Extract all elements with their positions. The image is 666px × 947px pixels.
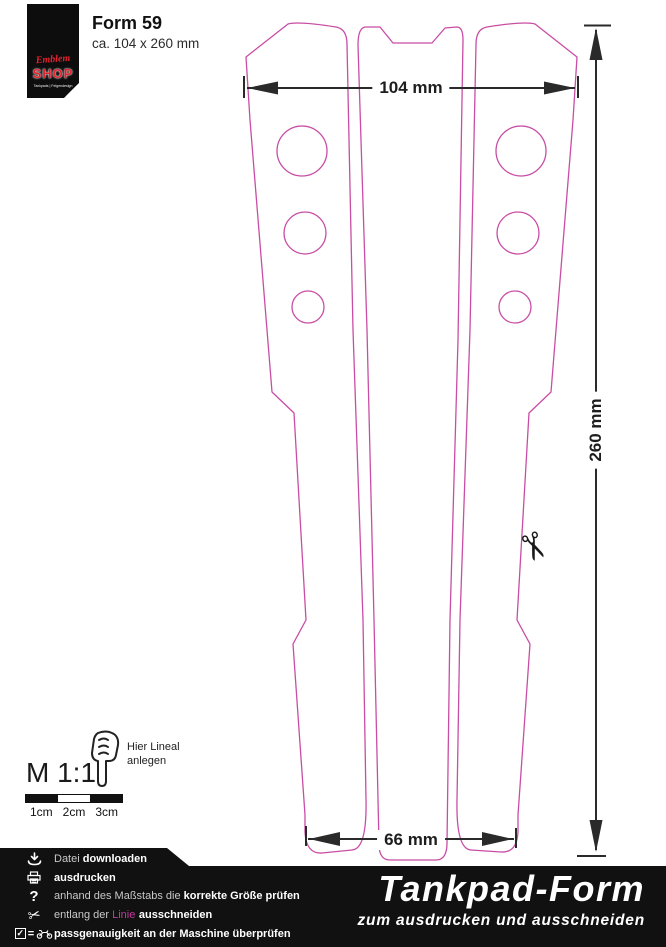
right-piece-outline [457, 23, 577, 852]
step-verify-fit: ✓= passgenauigkeit an der Maschine überp… [14, 924, 300, 943]
ruler-tick-3cm: 3cm [90, 805, 123, 819]
pointing-hand-icon [88, 729, 122, 791]
arrowhead-left [309, 832, 340, 846]
arrowhead-left [247, 82, 278, 95]
cutout-circle [292, 291, 324, 323]
printer-icon [14, 871, 54, 884]
scissors-icon: ✂ [14, 906, 54, 924]
step-text: ausdrucken [54, 872, 116, 884]
scale-label: M 1:1 [26, 757, 96, 789]
brand-title: Tankpad-Form [358, 869, 646, 909]
arrowhead-right [482, 832, 513, 846]
ruler-hint: Hier Lineal anlegen [127, 740, 180, 768]
ruler-tick-labels: 1cm 2cm 3cm [25, 805, 123, 819]
equals-sign: = [28, 928, 34, 940]
step-text: anhand des Maßstabs die korrekte Größe p… [54, 890, 300, 902]
height-dimension-label: 260 mm [586, 391, 606, 468]
brand-subtitle: zum ausdrucken und ausschneiden [358, 912, 646, 930]
step-check-size: ? anhand des Maßstabs die korrekte Größe… [14, 887, 300, 906]
checklist-icon: ✓= [14, 928, 54, 940]
bottom-width-dimension-label: 66 mm [377, 830, 445, 850]
arrowhead-up [590, 28, 603, 60]
left-piece-outline [246, 23, 366, 853]
cutout-circle [499, 291, 531, 323]
ruler-tick-2cm: 2cm [58, 805, 91, 819]
arrowhead-right [544, 82, 575, 95]
step-text: passgenauigkeit an der Maschine überprüf… [54, 928, 291, 940]
ruler-tick-1cm: 1cm [25, 805, 58, 819]
arrowhead-down [590, 820, 603, 852]
ruler-hint-line2: anlegen [127, 754, 180, 768]
brand-block: Tankpad-Form zum ausdrucken und ausschne… [358, 869, 646, 930]
ruler-segment [90, 795, 122, 802]
step-text: entlang der Linieausschneiden [54, 909, 212, 921]
width-dimension-label: 104 mm [372, 78, 449, 98]
question-icon: ? [14, 888, 54, 905]
template-outline [246, 23, 577, 860]
ruler-segment [26, 795, 58, 802]
step-cut: ✂ entlang der Linieausschneiden [14, 906, 300, 925]
cutout-circle [277, 126, 327, 176]
ruler-segment [58, 795, 90, 802]
template-page: Emblem SHOP Tankpads | Felgendesign Form… [0, 0, 666, 947]
scale-ruler [25, 794, 123, 803]
step-print: ausdrucken [14, 869, 300, 888]
download-icon [14, 852, 54, 866]
ruler-hint-line1: Hier Lineal [127, 740, 180, 754]
step-text: Datei downloaden [54, 853, 147, 865]
cutout-circle [284, 212, 326, 254]
motorcycle-icon [36, 928, 53, 939]
checkbox-icon: ✓ [15, 928, 26, 939]
cutout-circle [496, 126, 546, 176]
cutout-circle [497, 212, 539, 254]
center-strip-outline [358, 27, 463, 860]
